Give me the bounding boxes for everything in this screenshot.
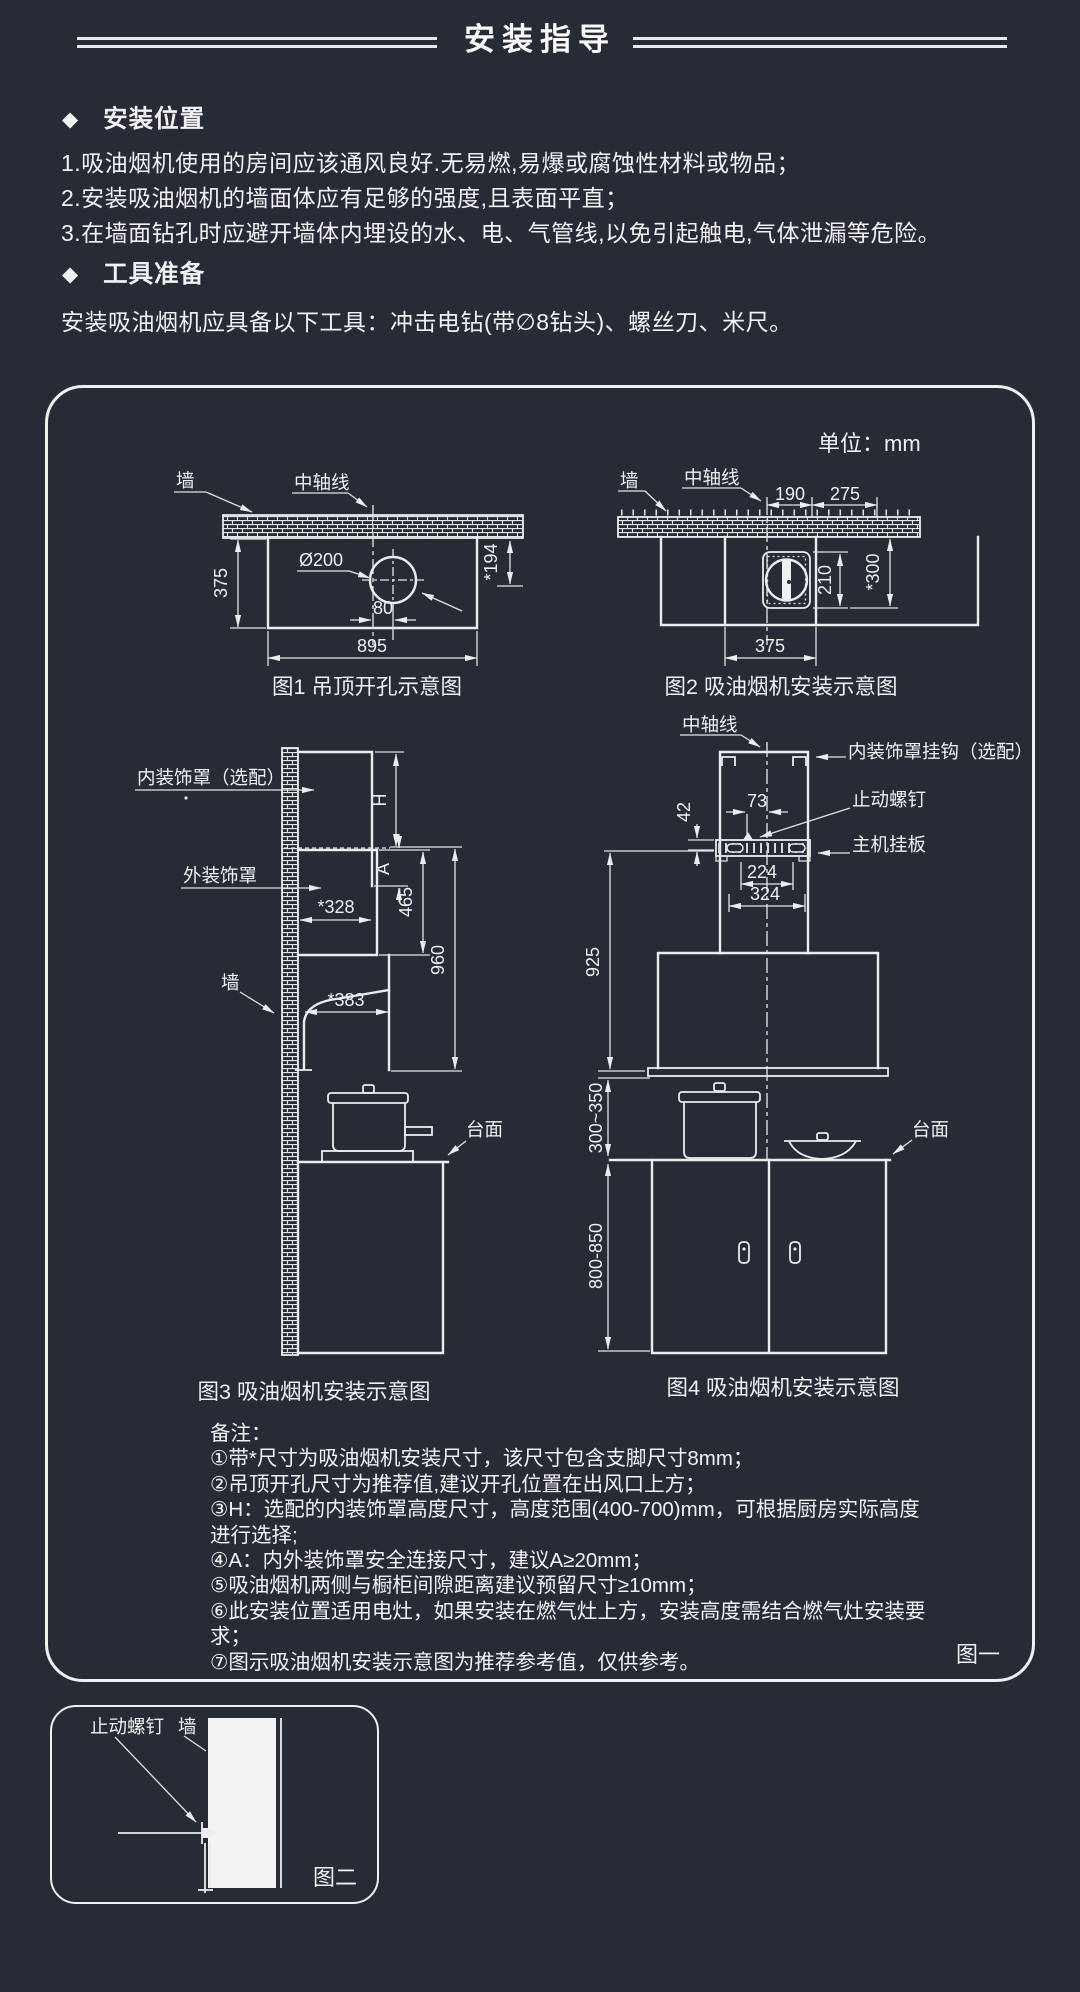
fig1-ceiling-hole-diagram: 墙 中轴线 Ø200 375 80 895 xyxy=(174,470,523,699)
fig3-inner-shroud-label: 内装饰罩（选配） xyxy=(137,767,285,788)
fig2-dim-375: 375 xyxy=(755,636,785,656)
fig4-dim-224: 224 xyxy=(747,862,777,882)
fig3-dim-H: H xyxy=(370,794,390,807)
note-item-2: ②吊顶开孔尺寸为推荐值,建议开孔位置在出风口上方； xyxy=(210,1472,926,1497)
notes-block: 备注： ①带*尺寸为吸油烟机安装尺寸，该尺寸包含支脚尺寸8mm； ②吊顶开孔尺寸… xyxy=(210,1421,926,1675)
fig1-dim-80: 80 xyxy=(373,598,393,618)
note-item-1: ①带*尺寸为吸油烟机安装尺寸，该尺寸包含支脚尺寸8mm； xyxy=(210,1446,926,1471)
section-heading-location: ◆安装位置 xyxy=(62,100,205,135)
fig3-dim-383: *383 xyxy=(327,990,364,1010)
detail-wall-label: 墙 xyxy=(178,1716,197,1737)
note-item-3: ③H：选配的内装饰罩高度尺寸，高度范围(400-700)mm，可根据厨房实际高度… xyxy=(210,1497,926,1548)
fig1-dim-375: 375 xyxy=(211,568,231,598)
fig1-axis-label: 中轴线 xyxy=(294,472,350,493)
stop-screw-detail-diagram: 止动螺钉 墙 图二 xyxy=(50,1705,380,1905)
fig3-dim-465: 465 xyxy=(396,887,416,917)
fig2-dim-210: 210 xyxy=(815,565,835,595)
fig4-wok xyxy=(784,1133,861,1159)
diamond-bullet-icon: ◆ xyxy=(62,263,79,286)
fig1-dim-895: 895 xyxy=(357,636,387,656)
fig1-dim-dia200: Ø200 xyxy=(299,550,343,570)
detail-wall-section xyxy=(208,1718,276,1888)
fig4-dim-800-850: 800-850 xyxy=(586,1223,606,1289)
fig1-dim-194: *194 xyxy=(481,543,501,580)
fig3-pot xyxy=(328,1085,432,1151)
fig4-axis-label: 中轴线 xyxy=(682,714,738,735)
fig4-hood-install-front-diagram: 中轴线 内装饰罩挂钩（选配） 止动螺钉 主机挂板 73 xyxy=(583,714,1033,1400)
fig4-caption: 图4 吸油烟机安装示意图 xyxy=(667,1376,900,1400)
section-heading-location-text: 安装位置 xyxy=(103,106,205,133)
fig2-dim-275: 275 xyxy=(830,484,860,504)
fig3-cabinet xyxy=(298,1162,443,1353)
fig4-dim-300-350: 300~350 xyxy=(586,1083,606,1154)
fig4-dim-42: 42 xyxy=(674,802,694,822)
note-item-4: ④A：内外装饰罩安全连接尺寸，建议A≥20mm； xyxy=(210,1548,926,1573)
detail-stop-screw xyxy=(118,1822,217,1844)
fig1-caption: 图1 吊顶开孔示意图 xyxy=(272,675,462,699)
notes-heading: 备注： xyxy=(210,1421,926,1446)
fig2-axis-label: 中轴线 xyxy=(684,467,740,488)
fig4-pot xyxy=(679,1083,760,1158)
fig4-dim-73: 73 xyxy=(747,791,767,811)
fig2-wall-section xyxy=(618,517,920,537)
detail-hood-panel xyxy=(198,1843,213,1893)
tools-text: 安装吸油烟机应具备以下工具：冲击电钻(带∅8钻头)、螺丝刀、米尺。 xyxy=(61,303,793,337)
fig2-dim-300: *300 xyxy=(863,553,883,590)
fig2-dim-190: 190 xyxy=(775,484,805,504)
section-heading-tools: ◆工具准备 xyxy=(62,255,205,290)
note-item-5: ⑤吸油烟机两侧与橱柜间隙距离建议预留尺寸≥10mm； xyxy=(210,1573,926,1598)
fig4-screw-label: 止动螺钉 xyxy=(852,789,926,810)
fig4-dim-324: 324 xyxy=(750,884,780,904)
manual-page: 安装指导 ◆安装位置 1.吸油烟机使用的房间应该通风良好.无易燃,易爆或腐蚀性材… xyxy=(0,0,1080,1992)
fig4-cabinet xyxy=(652,1160,886,1353)
figure-one-label: 图一 xyxy=(956,1642,1000,1667)
fig3-wall-section xyxy=(282,748,298,1355)
fig4-hood-body xyxy=(658,953,878,1068)
page-title: 安装指导 xyxy=(0,14,1080,59)
fig4-hood-bottom-lip xyxy=(648,1068,888,1076)
fig3-wall-label: 墙 xyxy=(221,972,240,993)
detail-screw-label: 止动螺钉 xyxy=(90,1716,164,1737)
fig2-hood-install-diagram: 墙 中轴线 190 275 210 *300 xyxy=(618,467,978,699)
figure-two-label: 图二 xyxy=(313,1865,357,1890)
fig4-stop-screw xyxy=(743,832,753,840)
fig3-caption: 图3 吸油烟机安装示意图 xyxy=(198,1380,431,1404)
note-item-6: ⑥此安装位置适用电灶，如果安装在燃气灶上方，安装高度需结合燃气灶安装要求； xyxy=(210,1599,926,1650)
note-item-7: ⑦图示吸油烟机安装示意图为推荐参考值，仅供参考。 xyxy=(210,1650,926,1675)
location-item-1: 1.吸油烟机使用的房间应该通风良好.无易燃,易爆或腐蚀性材料或物品； xyxy=(61,144,800,178)
fig2-wall-label: 墙 xyxy=(620,470,639,491)
fig4-counter-label: 台面 xyxy=(912,1119,949,1140)
fig3-inner-shroud xyxy=(298,752,372,886)
fig3-hood-install-side-diagram: 内装饰罩（选配） 外装饰罩 墙 H A *328 465 xyxy=(135,748,503,1404)
location-item-2: 2.安装吸油烟机的墙面体应有足够的强度,且表面平直； xyxy=(61,179,629,213)
fig3-dim-328: *328 xyxy=(317,897,354,917)
fig3-dim-A: A xyxy=(373,863,393,875)
fig4-hanger-hooks xyxy=(722,757,806,766)
fig3-counter-label: 台面 xyxy=(466,1119,503,1140)
fig4-plate-label: 主机挂板 xyxy=(852,834,926,855)
fig3-dim-960: 960 xyxy=(428,945,448,975)
location-item-3: 3.在墙面钻孔时应避开墙体内埋设的水、电、气管线,以免引起触电,气体泄漏等危险。 xyxy=(61,214,941,248)
unit-label: 单位：mm xyxy=(818,431,921,456)
fig3-outer-shroud-label: 外装饰罩 xyxy=(183,865,257,886)
section-heading-tools-text: 工具准备 xyxy=(103,261,205,288)
fig3-stove xyxy=(322,1151,413,1162)
fig1-wall-label: 墙 xyxy=(176,470,195,491)
diamond-bullet-icon: ◆ xyxy=(62,108,79,131)
fig4-dim-925: 925 xyxy=(583,947,603,977)
fig4-hook-label: 内装饰罩挂钩（选配） xyxy=(848,741,1033,762)
fig2-caption: 图2 吸油烟机安装示意图 xyxy=(665,675,898,699)
